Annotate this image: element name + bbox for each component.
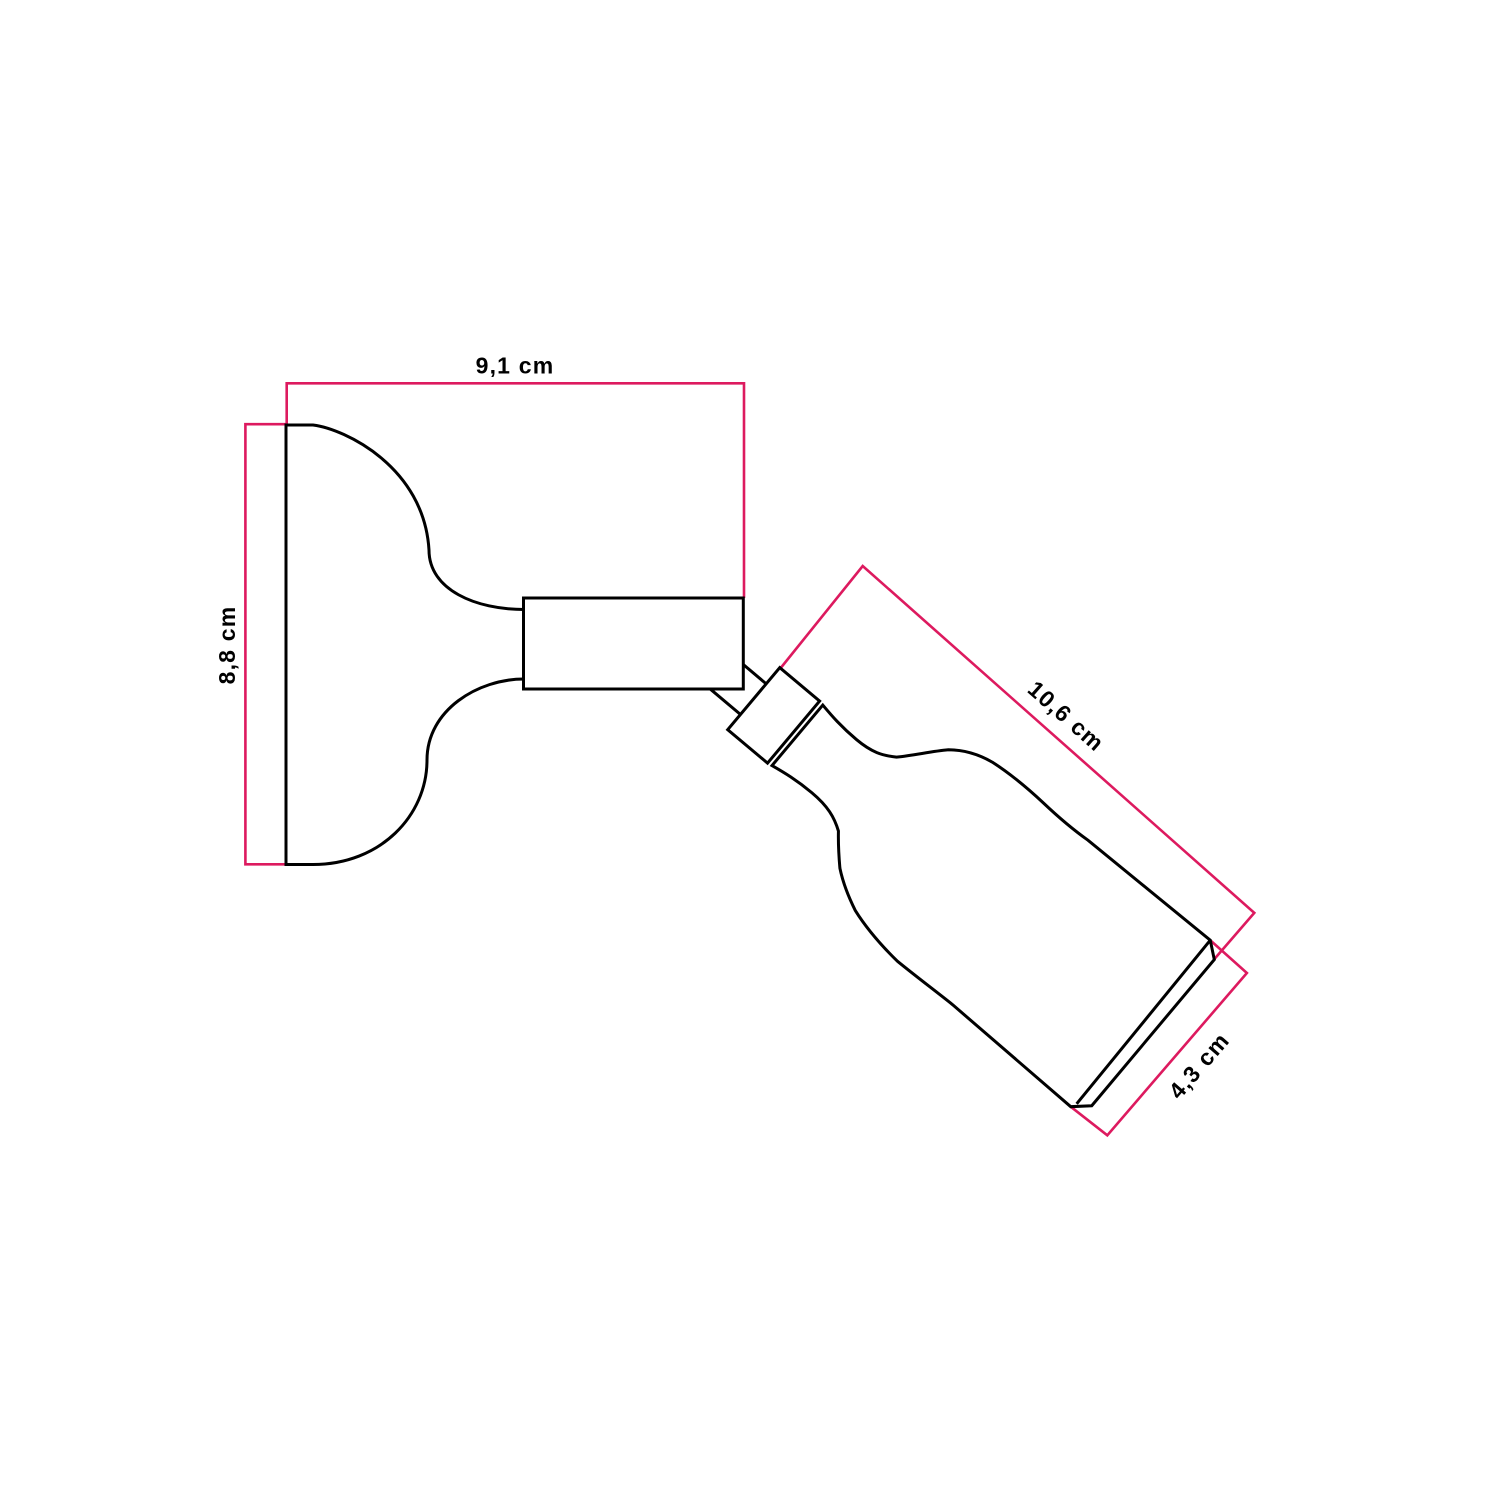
svg-text:8,8 cm: 8,8 cm	[214, 606, 240, 685]
svg-text:9,1 cm: 9,1 cm	[476, 352, 555, 378]
